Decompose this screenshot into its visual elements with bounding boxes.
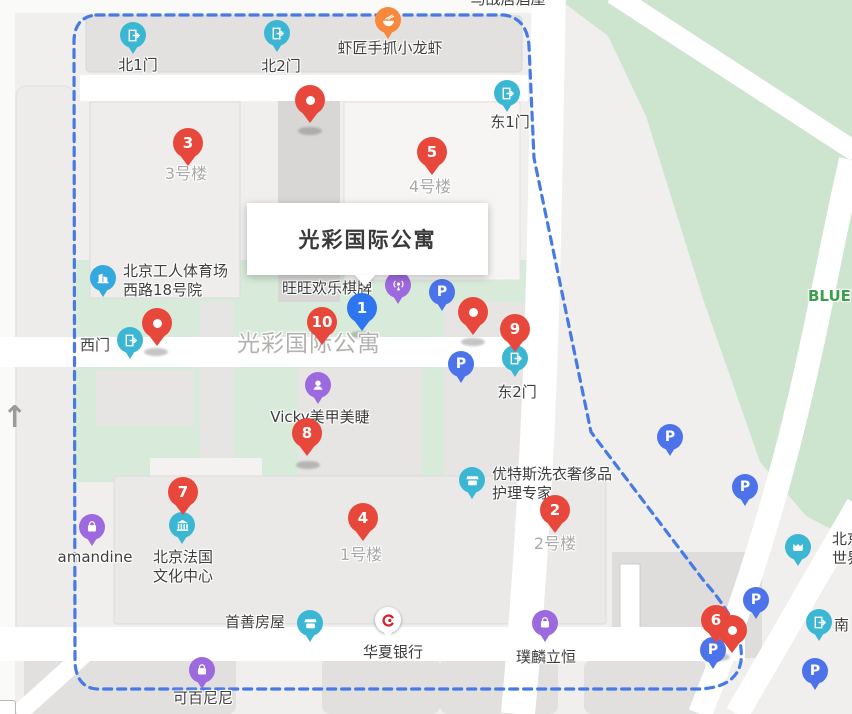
parking-icon[interactable]: P — [657, 424, 683, 456]
map-canvas[interactable]: PPPPPPP 北1门北2门虾匠手抓小龙虾东1门西门东2门马战居酒屋3号楼4号楼… — [0, 0, 852, 714]
restaurant-crayfish-icon[interactable] — [375, 7, 401, 39]
label-amandine: amandine — [58, 548, 133, 567]
south-block — [322, 658, 440, 714]
pin-shadow — [296, 461, 320, 469]
gate-north-2-icon[interactable] — [264, 20, 290, 52]
label-north-gate-1: 北1门 — [118, 56, 158, 75]
label-crayfish-restaurant: 虾匠手抓小龙虾 — [337, 39, 442, 58]
park-area — [560, 0, 852, 540]
red-pin[interactable] — [295, 85, 325, 123]
label-east-gate-1: 东1门 — [490, 113, 530, 132]
nails-vicky-icon[interactable] — [305, 372, 331, 404]
label-kebainini: 可百尼尼 — [173, 689, 233, 708]
label-building-2: 2号楼 — [534, 534, 576, 553]
parking-icon[interactable]: P — [429, 279, 455, 311]
label-izakaya-top: 马战居酒屋 — [470, 0, 545, 9]
courtyard-patch — [96, 370, 194, 426]
map-marker-9[interactable]: 9 — [500, 314, 530, 352]
parking-icon[interactable]: P — [802, 658, 828, 690]
label-shoushan-realty: 首善房屋 — [225, 613, 285, 632]
shop-amandine-icon[interactable] — [79, 514, 105, 546]
label-gongti-residence: 北京工人体育场西路18号院 — [123, 262, 228, 300]
bank-huaxia-icon[interactable] — [375, 607, 401, 639]
map-control-partial[interactable] — [0, 700, 16, 714]
laundry-youtesi-icon[interactable] — [459, 467, 485, 499]
map-marker-1[interactable]: 1 — [347, 293, 377, 331]
label-building-4: 4号楼 — [409, 177, 451, 196]
gate-south-icon[interactable] — [806, 609, 832, 641]
gate-east-1-icon[interactable] — [494, 80, 520, 112]
map-marker-5[interactable]: 5 — [417, 137, 447, 175]
pin-shadow — [144, 348, 168, 356]
label-building-3: 3号楼 — [165, 164, 207, 183]
realty-shoushan-icon[interactable] — [297, 610, 323, 642]
theater-beijing-world-icon[interactable] — [785, 534, 811, 566]
courtyard-patch — [200, 302, 234, 478]
west-street-block — [16, 86, 74, 660]
label-west-gate: 西门 — [80, 336, 110, 355]
map-marker-8[interactable]: 8 — [292, 418, 322, 456]
label-south-partial: 南 — [834, 616, 849, 635]
label-beijing-world: 北京世界 — [832, 530, 852, 568]
label-east-gate-2: 东2门 — [497, 383, 537, 402]
parking-icon[interactable]: P — [448, 351, 474, 383]
pin-shadow — [298, 127, 322, 135]
gate-west-icon[interactable] — [117, 327, 143, 359]
label-north-gate-2: 北2门 — [261, 57, 301, 76]
france-culture-center-icon[interactable] — [169, 512, 195, 544]
map-marker-7[interactable]: 7 — [168, 477, 198, 515]
map-marker-6[interactable]: 6 — [701, 605, 731, 643]
street-direction-arrow-icon: ↑ — [2, 400, 27, 435]
shop-kebainini-icon[interactable] — [189, 657, 215, 689]
red-pin[interactable] — [142, 308, 172, 346]
map-marker-3[interactable]: 3 — [173, 128, 203, 166]
map-marker-4[interactable]: 4 — [348, 503, 378, 541]
gate-north-1-icon[interactable] — [120, 22, 146, 54]
parking-icon[interactable]: P — [732, 474, 758, 506]
shop-pulin-icon[interactable] — [532, 610, 558, 642]
red-pin[interactable] — [458, 297, 488, 335]
pin-shadow — [461, 338, 485, 346]
south-block — [584, 660, 706, 714]
label-building-1: 1号楼 — [340, 545, 382, 564]
residence-gongti-icon[interactable] — [90, 265, 116, 297]
label-pulin-liheng: 璞麟立恒 — [516, 648, 576, 667]
info-window[interactable]: 光彩国际公寓 — [247, 203, 488, 275]
mahjong-wangwang-icon[interactable] — [385, 272, 411, 304]
label-blue-building: BLUE — [808, 287, 851, 306]
map-marker-2[interactable]: 2 — [540, 495, 570, 533]
map-marker-10[interactable]: 10 — [307, 307, 337, 345]
label-huaxia-bank: 华夏银行 — [363, 643, 423, 662]
label-france-culture-center: 北京法国文化中心 — [153, 548, 213, 586]
info-window-pointer — [355, 275, 375, 287]
